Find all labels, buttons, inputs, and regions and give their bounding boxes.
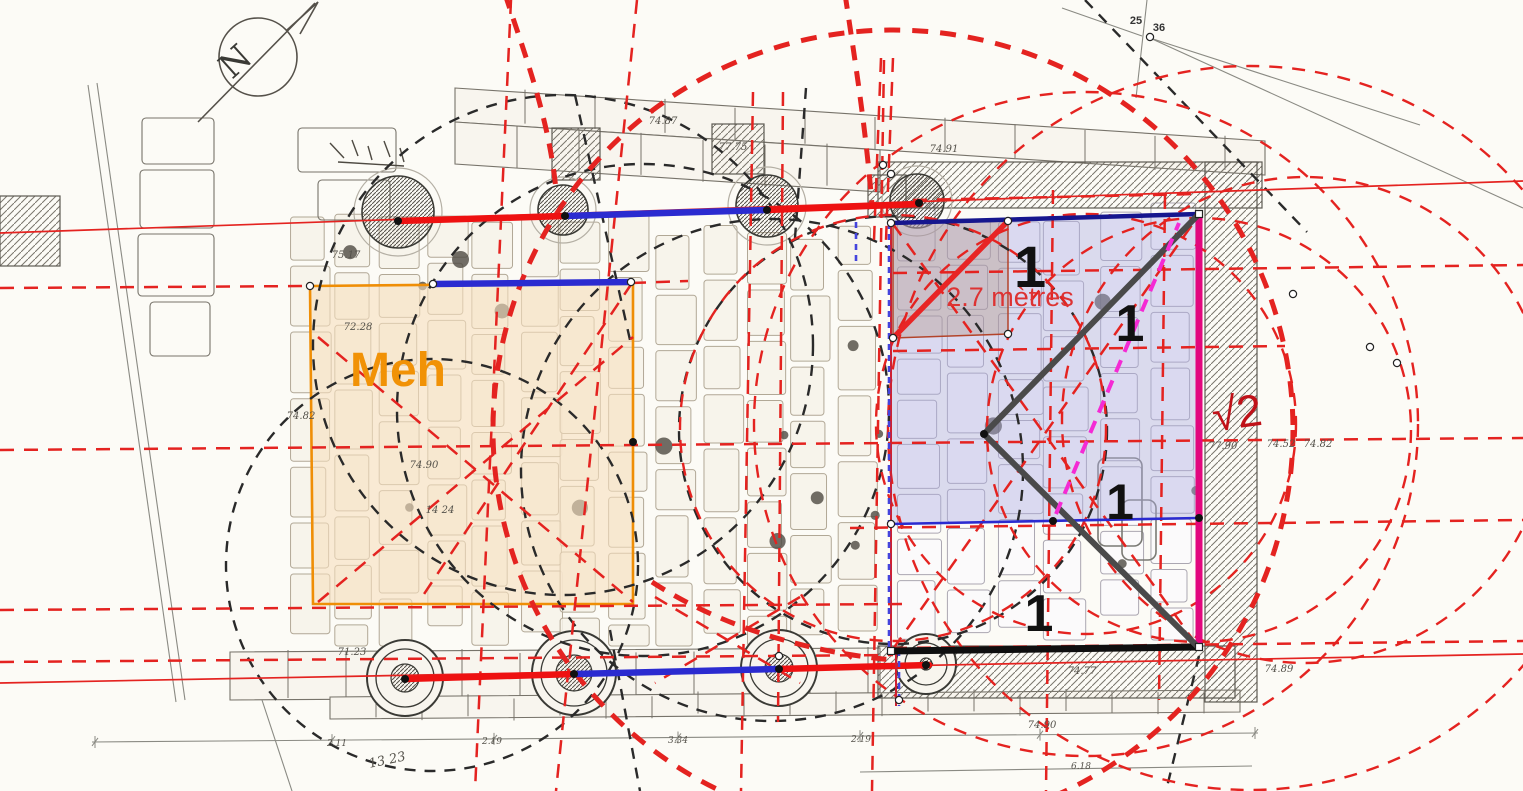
measure-2-7-metres: 2.7 mètres: [946, 282, 1074, 312]
unit-1-mid: 1: [1106, 474, 1134, 530]
plan-elevation-number: 2.19: [850, 735, 871, 745]
plan-elevation-number: 74.89: [1265, 664, 1294, 675]
sqrt2-label: √2: [1209, 384, 1265, 441]
diagram-canvas: Meh2.7 mètres√21111N253674.8777.7574.917…: [0, 0, 1523, 791]
meh-label: Meh: [350, 344, 446, 397]
plan-elevation-number: 2.11: [326, 739, 347, 749]
plan-elevation-number: 14 24: [426, 505, 455, 516]
point-36: 36: [1153, 22, 1165, 34]
plan-elevation-number: 6.18: [1071, 762, 1091, 772]
plan-elevation-number: 74.91: [930, 144, 959, 155]
geometric-analysis-diagram: Meh2.7 mètres√21111N253674.8777.7574.917…: [0, 0, 1523, 791]
plan-elevation-number: 74.90: [1028, 720, 1057, 731]
plan-elevation-number: 74.82: [1304, 439, 1333, 450]
unit-1-top: 1: [1014, 235, 1046, 300]
plan-elevation-number: 3.34: [668, 736, 688, 746]
plan-elevation-number: 2.19: [481, 737, 502, 747]
plan-elevation-number: 72.28: [344, 322, 373, 333]
plan-elevation-number: 74.77: [1068, 666, 1097, 677]
plan-elevation-number: 74.52: [1267, 439, 1296, 450]
unit-1-diagonal: 1: [1116, 295, 1145, 353]
plan-elevation-number: 74.90: [410, 460, 439, 471]
plan-elevation-number: 77.90: [1209, 441, 1238, 452]
plan-elevation-number: 74.87: [649, 116, 678, 127]
point-25: 25: [1130, 15, 1142, 27]
plan-elevation-number: 77.75: [719, 142, 748, 153]
plan-elevation-number: 74.82: [287, 411, 316, 422]
unit-1-bottom: 1: [1025, 585, 1054, 643]
plan-elevation-number: 75.17: [332, 250, 361, 261]
plan-elevation-number: 71.23: [338, 647, 367, 658]
